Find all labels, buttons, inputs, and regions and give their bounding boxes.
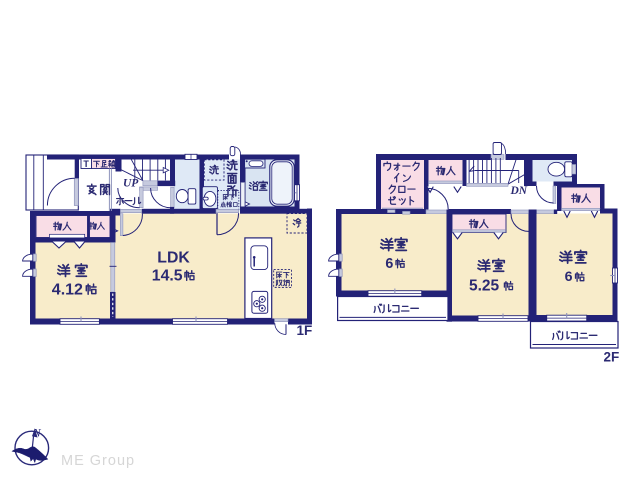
svg-text:1F: 1F [297, 323, 313, 338]
svg-text:T: T [83, 159, 89, 169]
svg-text:5.25: 5.25 [469, 277, 500, 294]
svg-text:6: 6 [385, 256, 393, 272]
svg-text:DN: DN [510, 185, 528, 197]
svg-text:2F: 2F [604, 350, 620, 365]
svg-text:14.5: 14.5 [152, 268, 183, 285]
svg-text:6: 6 [565, 269, 573, 285]
svg-text:ME Group: ME Group [61, 453, 135, 469]
svg-text:LDK: LDK [157, 250, 190, 267]
svg-text:UP: UP [123, 178, 139, 190]
svg-text:4.12: 4.12 [52, 282, 83, 299]
